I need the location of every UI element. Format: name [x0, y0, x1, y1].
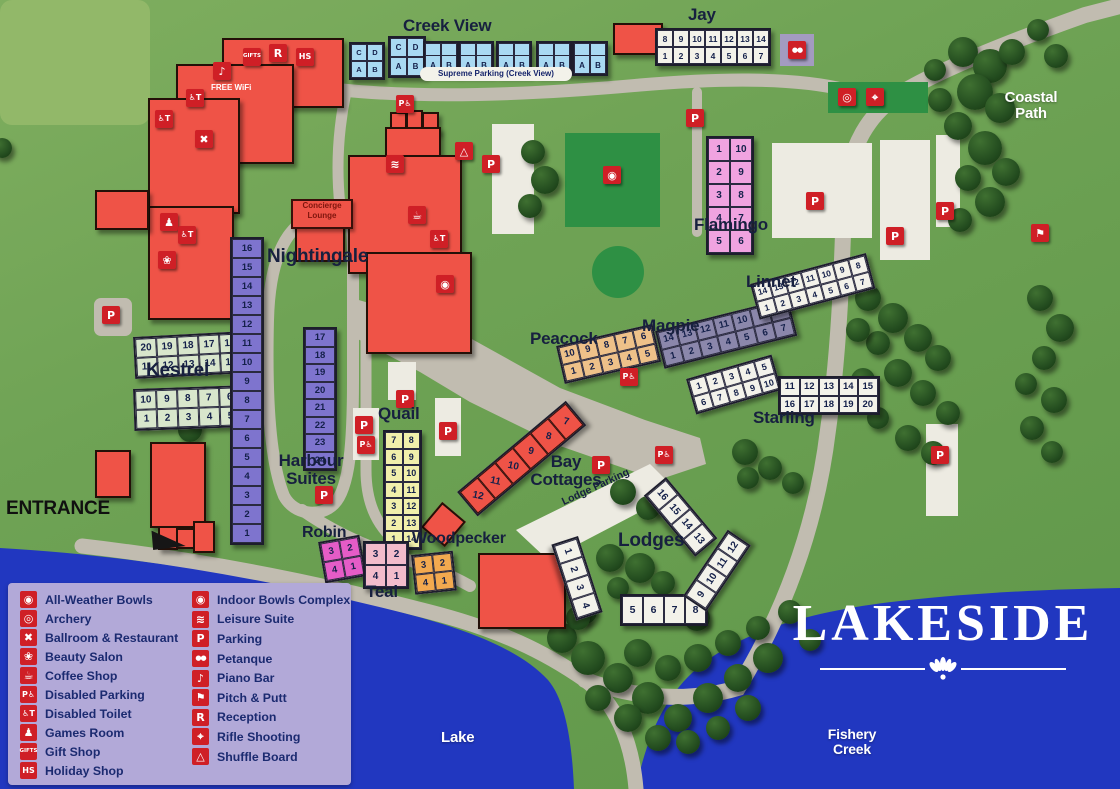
shell-ornament-icon	[925, 656, 961, 682]
unit-cell: 13	[737, 30, 753, 47]
area-label-lodges: Lodges	[618, 530, 684, 552]
tree	[684, 644, 712, 672]
unit-cell: 9	[232, 372, 262, 391]
tree	[1020, 416, 1044, 440]
legend-item: ✖Ballroom & Restaurant	[20, 628, 192, 647]
supreme-parking-label: Supreme Parking (Creek View)	[420, 67, 572, 81]
building	[95, 190, 149, 230]
legend-item-label: All-Weather Bowls	[45, 593, 153, 607]
unit-cell: 20	[858, 396, 878, 414]
beauty-salon-icon: ❀	[158, 251, 176, 269]
indoor-bowls-icon: ◉	[436, 275, 454, 293]
unit-cell: 19	[156, 337, 178, 357]
disabled-parking-icon: P♿	[357, 436, 375, 454]
unit-cell: 3	[385, 498, 403, 515]
unit-cell: 4	[232, 467, 262, 486]
area-label-peacock: Peacock	[530, 329, 598, 349]
unit-cell: 9	[673, 30, 689, 47]
disabled-toilet-icon: ♿T	[20, 705, 37, 722]
parking-icon: P	[102, 306, 120, 324]
games-room-icon: ♟	[160, 213, 178, 231]
kestrel-block-lower: 10987612345	[133, 385, 243, 431]
tree	[737, 467, 759, 489]
unit-cell: 5	[721, 47, 737, 64]
unit-cell: 4	[385, 482, 403, 499]
legend-item-label: Piano Bar	[217, 671, 274, 685]
legend-item-label: Gift Shop	[45, 745, 100, 759]
unit-cell: 17	[198, 334, 220, 354]
legend-item: ♪Piano Bar	[192, 668, 345, 688]
legend-item: ☕Coffee Shop	[20, 666, 192, 685]
unit-cell: 2	[232, 505, 262, 524]
tree	[936, 401, 960, 425]
unit-cell: 10	[730, 138, 752, 161]
area-label-jay: Jay	[688, 5, 716, 25]
legend-item-label: Ballroom & Restaurant	[45, 631, 178, 645]
unit-cell: 10	[403, 465, 421, 482]
holiday-shop-icon: HS	[20, 762, 37, 779]
legend-item-label: Disabled Toilet	[45, 707, 132, 721]
unit-cell: 9	[156, 389, 178, 409]
unit-cell: 19	[305, 364, 335, 382]
area-label-robin: Robin	[302, 524, 346, 542]
tree	[585, 685, 611, 711]
unit-cell: 2	[385, 515, 403, 532]
tree	[992, 158, 1020, 186]
logo-ornament	[768, 656, 1118, 682]
parking-icon: P	[192, 630, 209, 647]
tree	[746, 616, 770, 640]
concierge-lounge-label: Concierge Lounge	[291, 199, 353, 229]
unit-cell: 11	[705, 30, 721, 47]
unit-cell: 8	[657, 30, 673, 47]
tree	[724, 664, 752, 692]
disabled-parking-icon: P♿	[620, 368, 638, 386]
tree	[878, 303, 908, 333]
unit-cell: A	[574, 43, 590, 74]
unit-cell: 14	[232, 277, 262, 296]
area-label-creek-view: Creek View	[403, 16, 491, 36]
legend-item: ♟Games Room	[20, 723, 192, 742]
unit-cell: 10	[758, 373, 779, 394]
unit-cell: 7	[232, 410, 262, 429]
legend-item: P♿Disabled Parking	[20, 685, 192, 704]
map-title: LAKESIDE	[768, 598, 1118, 650]
legend-item-label: Petanque	[217, 652, 272, 666]
legend-item: ♿TDisabled Toilet	[20, 704, 192, 723]
parking-icon: P	[936, 202, 954, 220]
unit-cell: 10	[689, 30, 705, 47]
legend-item: PParking	[192, 629, 345, 649]
legend-item-label: Indoor Bowls Complex	[217, 593, 350, 607]
ballroom-icon: ✖	[195, 130, 213, 148]
unit-cell: A	[390, 57, 407, 76]
legend-item: ⚑Pitch & Putt	[192, 688, 345, 708]
tree	[624, 639, 652, 667]
tree	[895, 425, 921, 451]
area-label-flamingo: Flamingo	[694, 215, 768, 235]
unit-cell: 3	[232, 486, 262, 505]
tree	[975, 187, 1005, 217]
leisure-suite-icon: ≋	[386, 155, 404, 173]
unit-cell: 11	[403, 482, 421, 499]
unit-cell: 9	[403, 449, 421, 466]
area-label-teal: Teal	[366, 582, 398, 602]
tree	[732, 439, 758, 465]
unit-cell: 8	[730, 184, 752, 207]
unit-cell: 7	[772, 317, 795, 339]
legend-item-label: Disabled Parking	[45, 688, 145, 702]
unit-cell: 3	[413, 555, 434, 575]
legend-column-2: ◉Indoor Bowls Complex≋Leisure SuitePPark…	[192, 590, 345, 780]
unit-cell: 14	[839, 378, 859, 396]
unit-cell: 8	[232, 391, 262, 410]
unit-cell: 7	[198, 388, 220, 408]
tree	[715, 630, 741, 656]
unit-cell: D	[367, 44, 383, 61]
games-room-icon: ♟	[20, 724, 37, 741]
unit-cell: 22	[305, 417, 335, 435]
rifle-shooting-icon: ⌖	[192, 728, 209, 745]
building	[366, 252, 472, 354]
unit-cell: 6	[643, 596, 664, 624]
parking-icon: P	[315, 486, 333, 504]
unit-cell: 8	[403, 432, 421, 449]
creek-view-pair-5: AB	[572, 41, 608, 76]
legend-item: ●●Petanque	[192, 649, 345, 669]
legend-item: GIFTSGift Shop	[20, 742, 192, 761]
unit-cell: 3	[708, 184, 730, 207]
legend-item: ≋Leisure Suite	[192, 610, 345, 630]
unit-cell: 1	[342, 556, 364, 578]
tree	[531, 166, 559, 194]
tree	[910, 380, 936, 406]
unit-cell: 11	[780, 378, 800, 396]
all-weather-bowls-icon: ◉	[20, 591, 37, 608]
unit-cell: 13	[819, 378, 839, 396]
unit-cell: 1	[136, 409, 158, 429]
robin-block: 3241	[318, 535, 367, 584]
legend-item: HSHoliday Shop	[20, 761, 192, 780]
area-label-kestrel: Kestrel	[146, 360, 209, 382]
disabled-toilet-icon: ♿T	[155, 110, 173, 128]
legend-item: ◎Archery	[20, 609, 192, 628]
building	[95, 450, 131, 498]
tree	[924, 59, 946, 81]
parking-icon: P	[439, 422, 457, 440]
tree	[676, 730, 700, 754]
unit-cell: 23	[305, 434, 335, 452]
area-label-woodpecker: Woodpecker	[412, 530, 506, 548]
resort-logo: LAKESIDE	[768, 598, 1118, 682]
unit-cell: 9	[730, 161, 752, 184]
tree	[735, 695, 761, 721]
parking-icon: P	[355, 416, 373, 434]
legend-item: ⌖Rifle Shooting	[192, 727, 345, 747]
disabled-toilet-icon: ♿T	[186, 89, 204, 107]
unit-cell: 8	[177, 389, 199, 409]
reception-icon: R	[192, 709, 209, 726]
unit-cell: 2	[673, 47, 689, 64]
petanque-icon: ●●	[788, 41, 806, 59]
unit-cell: 7	[753, 47, 769, 64]
tree	[693, 683, 723, 713]
shuffle-board-icon: △	[192, 748, 209, 765]
tree	[944, 112, 972, 140]
unit-cell: 7	[664, 596, 685, 624]
tree	[655, 655, 681, 681]
unit-cell: 1	[434, 571, 455, 591]
unit-cell: 10	[135, 390, 157, 410]
unit-cell: 3	[365, 543, 386, 565]
unit-cell: 10	[232, 353, 262, 372]
parking-icon: P	[931, 446, 949, 464]
creek-view-block-cd-ab: CDAB	[349, 42, 385, 80]
tree	[571, 641, 605, 675]
gift-shop-icon: GIFTS	[243, 48, 261, 66]
legend-item-label: Games Room	[45, 726, 124, 740]
unit-cell: 6	[385, 449, 403, 466]
tree	[955, 165, 981, 191]
unit-cell: 1	[657, 47, 673, 64]
building	[478, 553, 566, 629]
shuffle-board-icon: △	[455, 142, 473, 160]
holiday-shop-icon: HS	[296, 48, 314, 66]
unit-cell: 5	[385, 465, 403, 482]
legend-item-label: Archery	[45, 612, 91, 626]
tree	[758, 456, 782, 480]
unit-cell: C	[390, 38, 407, 57]
legend-item: △Shuffle Board	[192, 747, 345, 767]
area-label-starling: Starling	[753, 408, 815, 428]
building	[150, 442, 206, 528]
tree	[1041, 441, 1063, 463]
tree	[1027, 19, 1049, 41]
resort-map: Creek View Jay Flamingo Linnet Magpie St…	[0, 0, 1120, 789]
tree	[664, 704, 692, 732]
unit-cell: 20	[135, 338, 157, 358]
tree	[706, 716, 730, 740]
legend-item-label: Shuffle Board	[217, 750, 298, 764]
coastal-path-label: Coastal Path	[986, 90, 1076, 122]
unit-cell: 5	[636, 343, 658, 364]
leisure-suite-icon: ≋	[192, 611, 209, 628]
tree	[1015, 373, 1037, 395]
unit-cell: A	[351, 61, 367, 78]
tree	[925, 345, 951, 371]
tree	[999, 39, 1025, 65]
tree	[1027, 285, 1053, 311]
unit-cell: 12	[721, 30, 737, 47]
unit-cell: 12	[232, 315, 262, 334]
legend-item: ◉All-Weather Bowls	[20, 590, 192, 609]
ballroom-icon: ✖	[20, 629, 37, 646]
unit-cell: 20	[305, 382, 335, 400]
archery-icon: ◎	[20, 610, 37, 627]
fishery-creek-label: Fishery Creek	[808, 727, 896, 756]
reception-icon: R	[269, 44, 287, 62]
unit-cell: 3	[178, 408, 200, 428]
legend-item-label: Rifle Shooting	[217, 730, 300, 744]
unit-cell: 4	[415, 573, 436, 593]
unit-cell: 16	[232, 239, 262, 258]
tree	[1032, 346, 1056, 370]
pitch-putt-icon: ⚑	[192, 689, 209, 706]
unit-cell: 19	[839, 396, 859, 414]
unit-cell: 2	[386, 543, 407, 565]
legend-item-label: Reception	[217, 710, 276, 724]
parking-icon: P	[806, 192, 824, 210]
unit-cell: D	[407, 38, 424, 57]
unit-cell: 18	[819, 396, 839, 414]
legend-item-label: Coffee Shop	[45, 669, 117, 683]
unit-cell: 4	[199, 407, 221, 427]
unit-cell: 13	[403, 515, 421, 532]
harbour-suites-column-left: 16151413121110987654321	[230, 237, 264, 545]
tree	[904, 324, 932, 352]
area-label-quail: Quail	[378, 404, 420, 424]
beauty-salon-icon: ❀	[20, 648, 37, 665]
legend-item-label: Pitch & Putt	[217, 691, 287, 705]
piano-bar-icon: ♪	[192, 670, 209, 687]
unit-cell: 4	[705, 47, 721, 64]
disabled-parking-icon: P♿	[20, 686, 37, 703]
rifle-shooting-icon: ⌖	[866, 88, 884, 106]
indoor-bowls-icon: ◉	[192, 591, 209, 608]
disabled-toilet-icon: ♿T	[178, 226, 196, 244]
coffee-shop-icon: ☕	[408, 206, 426, 224]
area-label-nightingale: Nightingale	[267, 246, 368, 268]
unit-cell: 21	[305, 399, 335, 417]
flamingo-block: 11029384756	[706, 136, 754, 255]
unit-cell: 15	[232, 258, 262, 277]
piano-bar-icon: ♪	[213, 62, 231, 80]
area-label-harbour-suites: Harbour Suites	[268, 452, 354, 488]
legend-panel: ◉All-Weather Bowls◎Archery✖Ballroom & Re…	[8, 583, 351, 785]
unit-cell: B	[590, 43, 606, 74]
unit-cell: 2	[157, 408, 179, 428]
unit-cell: 14	[753, 30, 769, 47]
unit-cell: 13	[232, 296, 262, 315]
legend-item: ❀Beauty Salon	[20, 647, 192, 666]
jay-block: 8910111213141234567	[655, 28, 771, 66]
legend-column-1: ◉All-Weather Bowls◎Archery✖Ballroom & Re…	[20, 590, 192, 780]
gift-shop-icon: GIFTS	[20, 743, 37, 760]
harbour-suites-column-right: 1718192021222324	[303, 327, 337, 471]
tree	[521, 140, 545, 164]
tree	[625, 553, 655, 583]
unit-cell: 18	[305, 347, 335, 365]
coffee-shop-icon: ☕	[20, 667, 37, 684]
tree	[866, 331, 890, 355]
tree	[518, 194, 542, 218]
tree	[884, 359, 912, 387]
pitch-putt-icon: ⚑	[1031, 224, 1049, 242]
tree	[614, 704, 642, 732]
unit-cell: C	[351, 44, 367, 61]
unit-cell: 12	[800, 378, 820, 396]
tree	[928, 88, 952, 112]
unit-cell: 1	[232, 524, 262, 543]
parking-icon: P	[686, 109, 704, 127]
legend-item-label: Beauty Salon	[45, 650, 123, 664]
area-label-magpie: Magpie	[642, 316, 699, 336]
legend-item-label: Holiday Shop	[45, 764, 124, 778]
unit-cell: 12	[403, 498, 421, 515]
legend-item-label: Leisure Suite	[217, 612, 294, 626]
tree	[782, 472, 804, 494]
parking-icon: P	[886, 227, 904, 245]
unit-cell: 18	[177, 336, 199, 356]
tree	[1044, 44, 1068, 68]
tree	[645, 725, 671, 751]
tree	[846, 318, 870, 342]
unit-cell: 6	[737, 47, 753, 64]
disabled-parking-icon: P♿	[396, 95, 414, 113]
unit-cell: 1	[708, 138, 730, 161]
legend-item: ◉Indoor Bowls Complex	[192, 590, 345, 610]
unit-cell: 15	[858, 378, 878, 396]
all-weather-bowls-icon: ◉	[603, 166, 621, 184]
legend-item: RReception	[192, 708, 345, 728]
unit-cell: 5	[622, 596, 643, 624]
unit-cell: 17	[305, 329, 335, 347]
free-wifi-label: FREE WiFi	[211, 83, 251, 92]
tree	[651, 571, 675, 595]
tree	[1046, 314, 1074, 342]
archery-icon: ◎	[838, 88, 856, 106]
woodpecker-block: 3241	[411, 551, 457, 595]
disabled-toilet-icon: ♿T	[430, 230, 448, 248]
unit-cell: B	[367, 61, 383, 78]
unit-cell: 11	[232, 334, 262, 353]
entrance-label: ENTRANCE	[6, 498, 110, 520]
unit-cell: 7	[852, 271, 872, 291]
area-label-linnet: Linnet	[746, 272, 796, 292]
petanque-icon: ●●	[192, 650, 209, 667]
unit-cell: 3	[689, 47, 705, 64]
unit-cell: 6	[232, 429, 262, 448]
unit-cell: 5	[232, 448, 262, 467]
unit-cell: 2	[708, 161, 730, 184]
tree	[1041, 387, 1067, 413]
parking-icon: P	[482, 155, 500, 173]
lake-label: Lake	[441, 729, 474, 746]
disabled-parking-icon: P♿	[655, 446, 673, 464]
unit-cell: 2	[432, 553, 453, 573]
unit-cell: 7	[385, 432, 403, 449]
legend-item-label: Parking	[217, 632, 262, 646]
building	[193, 521, 215, 553]
